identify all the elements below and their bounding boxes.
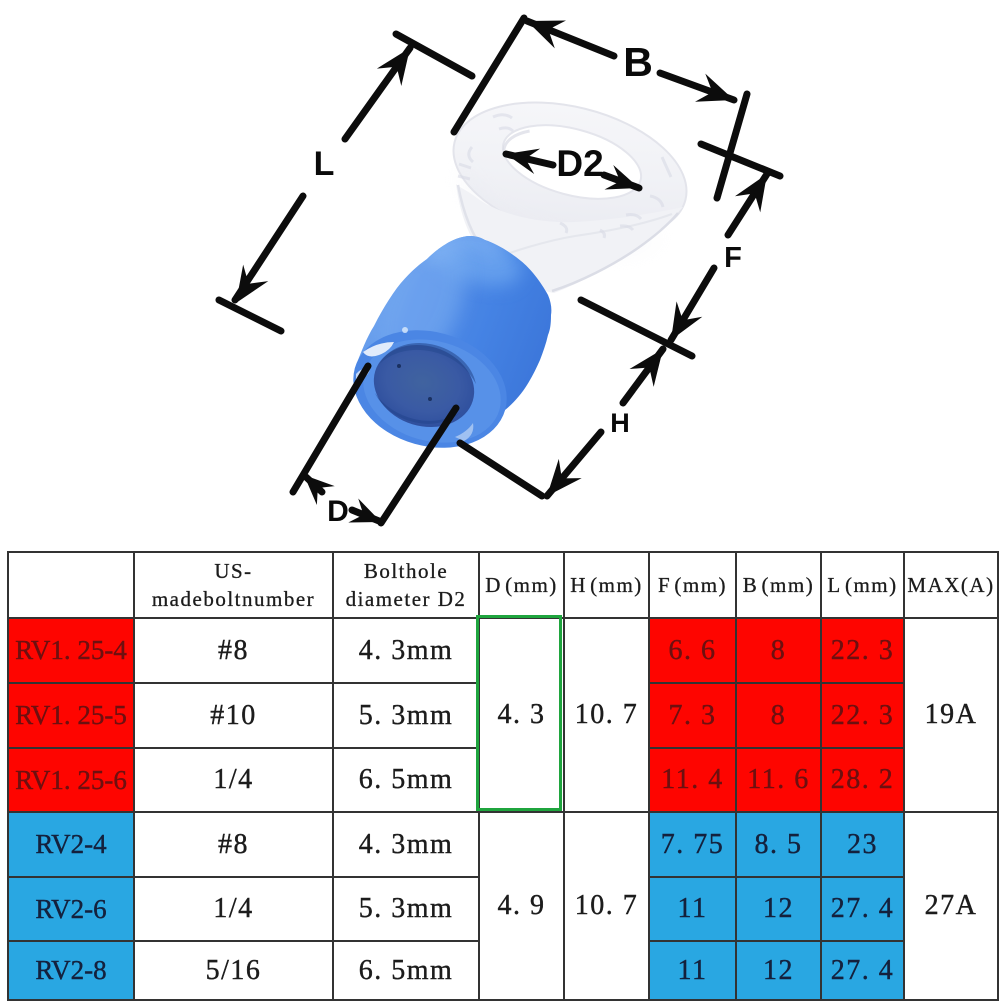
svg-text:B: B	[623, 39, 653, 85]
svg-text:H: H	[610, 408, 630, 438]
svg-text:D2: D2	[556, 143, 603, 184]
svg-text:L: L	[314, 145, 335, 183]
svg-text:D: D	[327, 495, 349, 528]
svg-text:F: F	[724, 242, 742, 274]
